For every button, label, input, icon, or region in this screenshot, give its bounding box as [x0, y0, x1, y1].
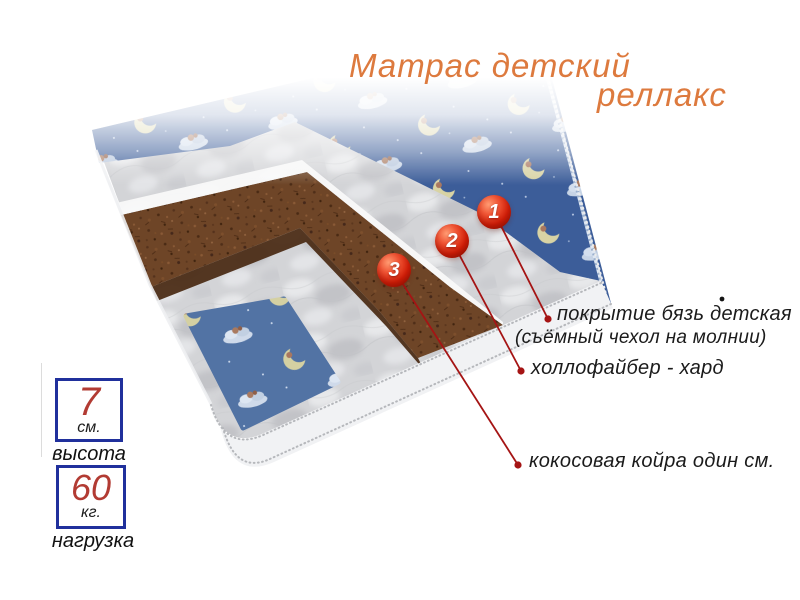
period-dot: [720, 297, 725, 302]
layer-badge-3: 3: [377, 253, 411, 287]
load-unit: кг.: [81, 505, 101, 521]
spec-box-load: 60 кг.: [56, 465, 126, 529]
layer-badge-1: 1: [477, 195, 511, 229]
callout-sublabel-1: (съёмный чехол на молнии): [515, 327, 767, 349]
callout-dot-2: [517, 367, 524, 374]
product-title-line2: реллакс: [597, 76, 727, 114]
fade-overlay: [40, 0, 640, 185]
callout-dot-1: [544, 315, 551, 322]
callout-label-3: кокосовая койра один см.: [529, 450, 774, 473]
load-caption: нагрузка: [38, 530, 148, 553]
height-caption: высота: [34, 443, 144, 466]
height-value: 7: [78, 385, 100, 419]
layer-badge-1-number: 1: [488, 201, 499, 224]
height-unit: см.: [77, 420, 100, 436]
callout-dot-3: [514, 461, 521, 468]
layer-badge-2: 2: [435, 224, 469, 258]
callout-label-2: холлофайбер - хард: [531, 357, 724, 380]
layer-badge-3-number: 3: [388, 259, 399, 282]
spec-box-height: 7 см.: [55, 378, 123, 442]
callout-label-1: покрытие бязь детская: [557, 303, 792, 326]
product-infographic: Матрас детский реллакс 1 2 3 покрытие бя…: [0, 0, 800, 600]
load-value: 60: [71, 473, 111, 504]
layer-badge-2-number: 2: [446, 230, 457, 253]
product-title-line1: Матрас детский: [349, 47, 631, 85]
